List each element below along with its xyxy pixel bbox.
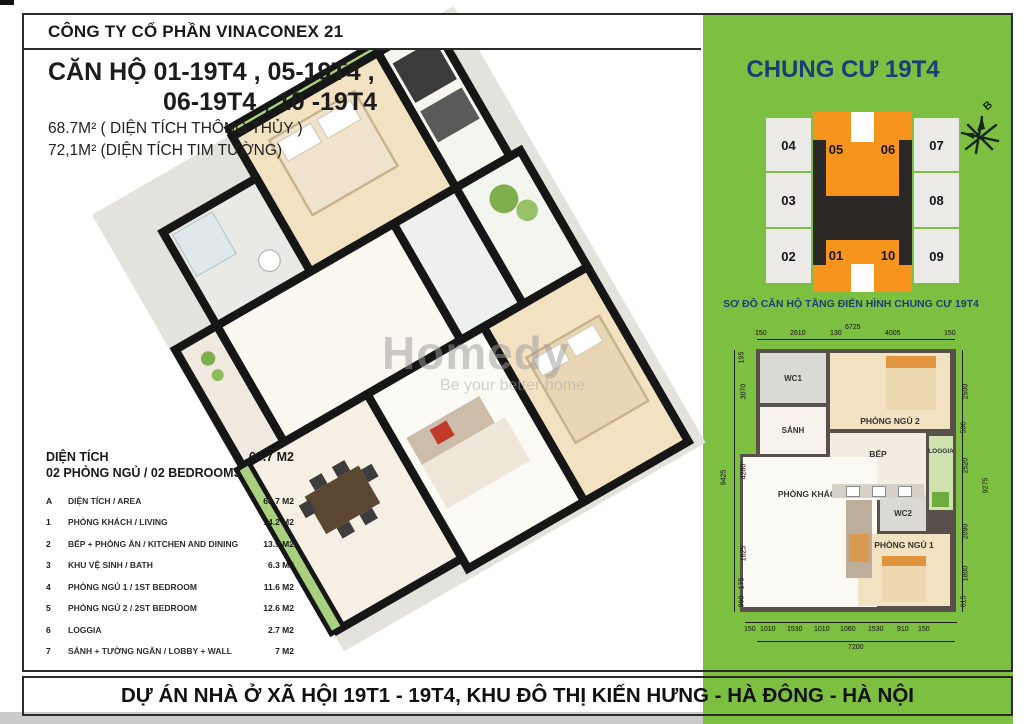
unit-number: 09: [914, 249, 959, 264]
dim-value: 1625: [740, 546, 747, 562]
table-row: 5 PHÒNG NGỦ 2 / 2ST BEDROOM 12.6 M2: [46, 598, 294, 620]
corner-mark: [0, 0, 14, 5]
dim-value: 6725: [845, 324, 861, 331]
row-value: 13.9 M2: [242, 539, 294, 549]
row-label: DIỆN TÍCH / AREA: [68, 496, 242, 506]
row-no: 5: [46, 603, 68, 613]
row-no: 2: [46, 539, 68, 549]
dim-value: 150: [918, 626, 930, 633]
row-no: 3: [46, 560, 68, 570]
row-label: BẾP + PHÒNG ĂN / KITCHEN AND DINING: [68, 539, 242, 549]
apartment-area-clear: 68.7M² ( DIỆN TÍCH THÔNG THỦY ): [48, 120, 303, 138]
company-name: CÔNG TY CỔ PHẦN VINACONEX 21: [48, 22, 343, 42]
dim-value: 615: [960, 596, 967, 608]
dim-value: 4005: [885, 330, 901, 337]
unit-number: 02: [766, 249, 811, 264]
dim-value: 2610: [790, 330, 806, 337]
dim-value: 195: [738, 352, 745, 364]
unit-number-highlight: 01: [818, 248, 854, 263]
dim-line-left: [734, 350, 735, 612]
row-label: PHÒNG NGỦ 1 / 1ST BEDROOM: [68, 582, 242, 592]
row-value: 68.7 M2: [242, 496, 294, 506]
apartment-title-line2: 06-19T4 , 10 -19T4: [163, 88, 377, 117]
table-row: 2 BẾP + PHÒNG ĂN / KITCHEN AND DINING 13…: [46, 533, 294, 555]
floorkey-notch-top: [851, 112, 874, 142]
row-value: 11.6 M2: [242, 582, 294, 592]
row-label: PHÒNG KHÁCH / LIVING: [68, 517, 242, 527]
unit-number: 03: [766, 193, 811, 208]
spec-rows: A DIỆN TÍCH / AREA 68.7 M2 1 PHÒNG KHÁCH…: [46, 490, 294, 662]
dim-value: 1010: [814, 626, 830, 633]
table-row: 4 PHÒNG NGỦ 1 / 1ST BEDROOM 11.6 M2: [46, 576, 294, 598]
table-row: A DIỆN TÍCH / AREA 68.7 M2: [46, 490, 294, 512]
watermark-name: Homedy: [382, 330, 585, 376]
apartment-title-line1: CĂN HỘ 01-19T4 , 05-19T4 ,: [48, 58, 375, 87]
dim-value: 2520: [962, 458, 969, 474]
spec-header-sub: 02 PHÒNG NGỦ / 02 BEDROOMS: [46, 466, 294, 480]
table-row: 7 SẢNH + TƯỜNG NGĂN / LOBBY + WALL 7 M2: [46, 641, 294, 663]
watermark: Homedy Be your better home: [382, 330, 585, 394]
floorkey-notch-bottom: [851, 264, 874, 292]
row-label: KHU VỆ SINH / BATH: [68, 560, 242, 570]
dim-value: 1800: [962, 566, 969, 582]
row-no: 4: [46, 582, 68, 592]
spec-header-label: DIỆN TÍCH: [46, 450, 109, 464]
unit-number-highlight: 10: [870, 248, 906, 263]
row-value: 12.6 M2: [242, 603, 294, 613]
watermark-tagline: Be your better home: [440, 378, 585, 394]
apartment-area-wall: 72,1M² (DIỆN TÍCH TIM TƯỜNG): [48, 142, 282, 160]
row-label: PHÒNG NGỦ 2 / 2ST BEDROOM: [68, 603, 242, 613]
poster-page: CÔNG TY CỔ PHẦN VINACONEX 21 CĂN HỘ 01-1…: [0, 0, 1024, 724]
dim-value: 2090: [962, 524, 969, 540]
unit-number: 08: [914, 193, 959, 208]
table-row: 6 LOGGIA 2.7 M2: [46, 619, 294, 641]
dim-value: 500: [960, 422, 967, 434]
room-wc1: WC1: [760, 353, 826, 403]
row-no: 7: [46, 646, 68, 656]
dim-value: 4280: [740, 464, 747, 480]
dim-value: 9275: [982, 478, 989, 494]
dim-value: 1060: [840, 626, 856, 633]
row-value: 7 M2: [242, 646, 294, 656]
dim-line-bottom-total: [757, 641, 955, 642]
dim-value: 1530: [868, 626, 884, 633]
dim-value: 960: [738, 596, 745, 608]
dim-line-bottom: [745, 622, 957, 623]
dim-value: 9425: [720, 470, 727, 486]
table-row: 1 PHÒNG KHÁCH / LIVING 14.2 M2: [46, 512, 294, 534]
row-no: 6: [46, 625, 68, 635]
unit-number-highlight: 06: [870, 142, 906, 157]
floorkey-core-center: [826, 196, 899, 240]
dim-value: 150: [944, 330, 956, 337]
row-value: 2.7 M2: [242, 625, 294, 635]
row-label: SẢNH + TƯỜNG NGĂN / LOBBY + WALL: [68, 646, 242, 656]
unit-number: 07: [914, 138, 959, 153]
dim-value: 910: [897, 626, 909, 633]
dim-value: 130: [830, 330, 842, 337]
row-label: LOGGIA: [68, 625, 242, 635]
row-value: 14.2 M2: [242, 517, 294, 527]
floorkey-core-right: [899, 140, 912, 265]
unit-number-highlight: 05: [818, 142, 854, 157]
room-wc2: WC2: [880, 495, 926, 531]
dim-line-top: [757, 339, 955, 340]
row-no: 1: [46, 517, 68, 527]
compass-north-icon: [952, 95, 1012, 175]
project-banner-text: DỰ ÁN NHÀ Ở XÃ HỘI 19T1 - 19T4, KHU ĐÔ T…: [121, 684, 914, 708]
dim-value: 1010: [760, 626, 776, 633]
dim-value: 150: [744, 626, 756, 633]
dim-value: 2500: [962, 384, 969, 400]
table-row: 3 KHU VỆ SINH / BATH 6.3 M2: [46, 555, 294, 577]
spec-header-value: 68.7 M2: [249, 450, 294, 464]
project-banner: DỰ ÁN NHÀ Ở XÃ HỘI 19T1 - 19T4, KHU ĐÔ T…: [22, 676, 1013, 716]
dim-value: 150: [755, 330, 767, 337]
dim-value: 3070: [740, 384, 747, 400]
unit-number: 04: [766, 138, 811, 153]
row-no: A: [46, 496, 68, 506]
floorkey-core-left: [813, 140, 826, 265]
area-spec-table: DIỆN TÍCH 68.7 M2 02 PHÒNG NGỦ / 02 BEDR…: [46, 450, 294, 662]
floorplan-caption: SƠ ĐỒ CĂN HỘ TẦNG ĐIỂN HÌNH CHUNG CƯ 19T…: [703, 298, 999, 310]
dim-value: 7200: [848, 644, 864, 651]
dim-value: 175: [738, 578, 745, 590]
room-hall: SẢNH: [760, 407, 826, 454]
tower-title: CHUNG CƯ 19T4: [728, 56, 958, 84]
dim-value: 1530: [787, 626, 803, 633]
row-value: 6.3 M2: [242, 560, 294, 570]
